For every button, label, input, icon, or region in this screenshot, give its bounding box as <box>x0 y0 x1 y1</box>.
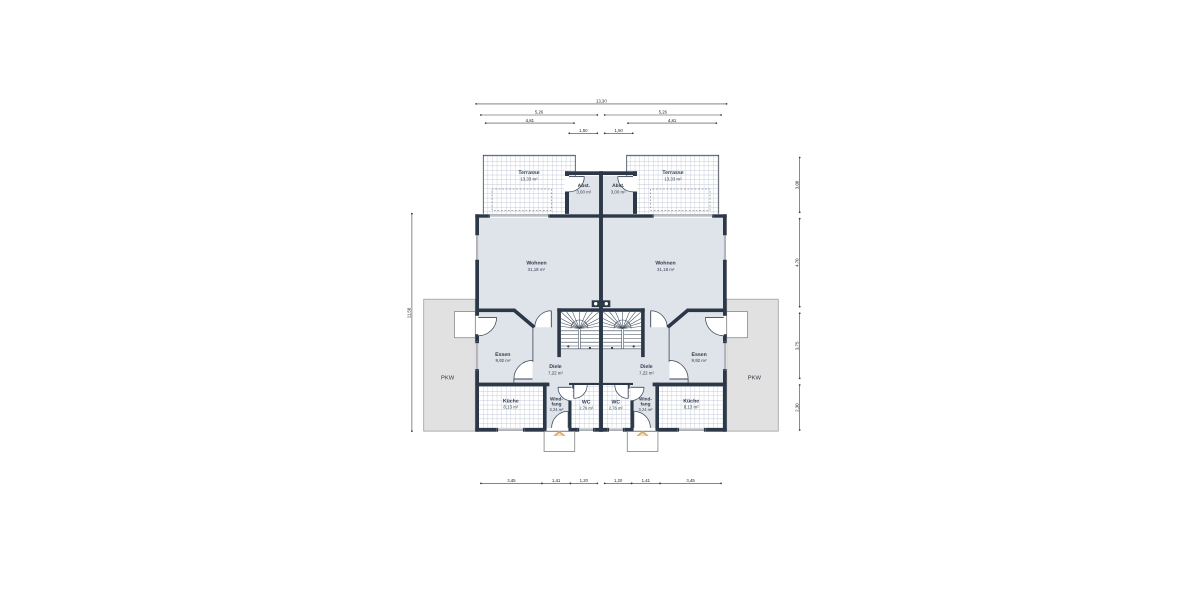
svg-text:3,00 m²: 3,00 m² <box>576 190 591 195</box>
svg-text:1,50: 1,50 <box>579 128 588 133</box>
svg-text:Wohnen: Wohnen <box>526 260 546 266</box>
svg-text:7,22 m²: 7,22 m² <box>548 370 563 375</box>
svg-text:Wind-: Wind- <box>550 396 563 401</box>
svg-text:8,13 m²: 8,13 m² <box>684 405 699 410</box>
svg-text:2,76 m²: 2,76 m² <box>609 405 624 410</box>
svg-text:Essen: Essen <box>495 352 510 358</box>
svg-text:fang: fang <box>641 402 651 407</box>
svg-text:8,13 m²: 8,13 m² <box>503 405 518 410</box>
svg-text:4,81: 4,81 <box>526 118 535 123</box>
svg-text:Küche: Küche <box>683 398 699 404</box>
svg-text:1,41: 1,41 <box>552 478 561 483</box>
svg-text:2,30: 2,30 <box>794 403 799 412</box>
svg-text:5,26: 5,26 <box>659 110 668 115</box>
svg-text:5,26: 5,26 <box>535 110 544 115</box>
svg-text:Diele: Diele <box>640 364 653 370</box>
svg-text:Terrasse: Terrasse <box>662 170 683 176</box>
svg-text:Küche: Küche <box>503 398 519 404</box>
svg-text:Terrasse: Terrasse <box>518 170 539 176</box>
svg-text:PKW: PKW <box>441 375 455 381</box>
svg-text:3,45: 3,45 <box>686 478 695 483</box>
svg-text:3,24 m²: 3,24 m² <box>639 407 654 412</box>
svg-text:Essen: Essen <box>692 352 707 358</box>
svg-text:31,18 m²: 31,18 m² <box>657 267 675 272</box>
svg-text:Abst.: Abst. <box>578 183 591 189</box>
svg-text:4,70: 4,70 <box>794 258 799 267</box>
svg-text:4,81: 4,81 <box>668 118 677 123</box>
svg-text:9,92 m²: 9,92 m² <box>496 358 511 363</box>
svg-text:3,24 m²: 3,24 m² <box>550 407 565 412</box>
svg-text:7,22 m²: 7,22 m² <box>639 370 654 375</box>
svg-text:1,50: 1,50 <box>615 128 624 133</box>
svg-text:13,30: 13,30 <box>596 99 607 104</box>
svg-text:13,33 m²: 13,33 m² <box>664 177 682 182</box>
svg-text:13,33 m²: 13,33 m² <box>520 177 538 182</box>
svg-text:Diele: Diele <box>549 364 562 370</box>
svg-text:3,75: 3,75 <box>794 341 799 350</box>
svg-text:Abst.: Abst. <box>612 183 625 189</box>
svg-text:3,00 m²: 3,00 m² <box>611 190 626 195</box>
svg-text:Wohnen: Wohnen <box>655 260 675 266</box>
svg-text:3,45: 3,45 <box>507 478 516 483</box>
svg-text:1,20: 1,20 <box>614 478 623 483</box>
svg-text:1,20: 1,20 <box>580 478 589 483</box>
svg-text:Wind-: Wind- <box>639 396 652 401</box>
svg-text:2,76 m²: 2,76 m² <box>579 405 594 410</box>
svg-text:PKW: PKW <box>748 375 762 381</box>
svg-text:1,41: 1,41 <box>642 478 651 483</box>
svg-text:9,92 m²: 9,92 m² <box>692 358 707 363</box>
svg-text:fang: fang <box>552 402 562 407</box>
svg-text:3,00: 3,00 <box>794 180 799 189</box>
svg-text:11,50: 11,50 <box>407 307 412 318</box>
svg-text:31,18 m²: 31,18 m² <box>528 267 546 272</box>
